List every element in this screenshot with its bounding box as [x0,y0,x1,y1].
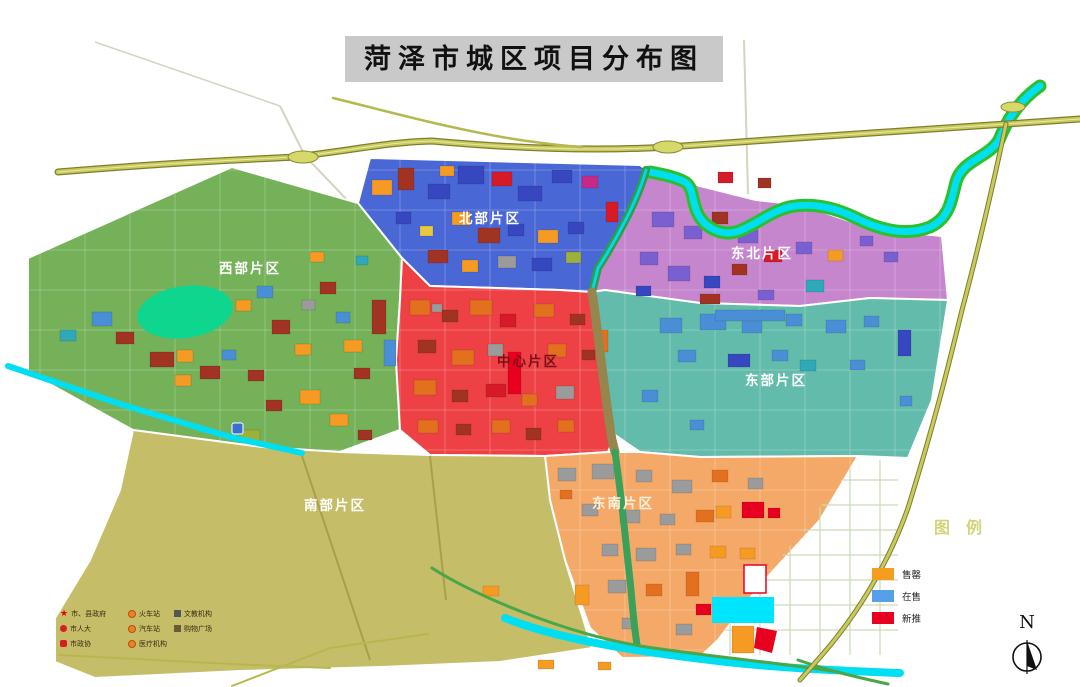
parcel [796,242,812,254]
parcel [483,586,499,596]
legend-item-onsale: 在售 [872,590,921,602]
district-label-east: 东部片区 [745,372,807,388]
district-label-southeast: 东南片区 [592,495,654,511]
map-page: 西部片区北部片区东北片区中心片区东部片区东南片区南部片区 菏泽市城区项目分布图 … [0,0,1080,687]
poi-label: 市、县政府 [71,609,106,619]
parcel [558,420,574,432]
parcel [414,380,436,395]
parcel [330,414,348,426]
parcel [592,464,614,479]
parcel [526,428,541,440]
map-title: 菏泽市城区项目分布图 [345,36,723,82]
parcel [310,252,324,262]
poi-item: 购物广场 [174,621,212,636]
emblem-square-icon [60,640,67,647]
parcel [150,352,174,367]
parcel [175,375,191,386]
parcel [522,394,537,406]
outlined-parcel [744,565,766,593]
hospital-icon [128,640,136,648]
parcel [678,350,696,362]
legend-title: 图例 [934,514,1020,538]
parcel [500,314,516,327]
parcel [606,202,618,222]
poi-item: 医疗机构 [128,636,167,651]
parcel [222,350,236,360]
parcel [566,252,581,263]
compass: N [1004,610,1050,686]
parcel [684,226,702,239]
parcel [354,368,370,379]
interchange-icon [288,151,318,163]
parcel [676,624,692,635]
parcel [372,180,392,195]
parcel [660,318,682,333]
parcel [772,350,788,361]
parcel [898,330,911,356]
parcel [236,300,251,311]
parcel [538,230,558,243]
parcel [556,386,574,399]
parcel [534,304,554,317]
parcel [302,300,315,310]
parcel [257,286,273,298]
parcel [582,176,598,188]
poi-label: 汽车站 [139,624,160,634]
parcel [558,468,576,481]
parcel [860,236,873,246]
parcel [560,490,572,499]
parcel [60,330,76,341]
parcel [568,222,584,234]
parcel [642,390,658,402]
parcel [768,508,780,518]
interchange-icon [653,141,683,153]
parcel [358,430,372,440]
district-label-northeast: 东北片区 [731,245,793,261]
parcel [452,390,468,402]
parcel [608,580,626,593]
parcel [177,350,193,362]
parcel [462,260,478,272]
parcel [320,282,336,294]
parcel [582,350,595,360]
parcel [598,662,611,670]
parcel [716,506,731,518]
parcel [492,420,510,433]
minor-road [333,98,582,147]
compass-n-label: N [1019,612,1035,633]
parcel [486,384,506,397]
parcel [718,172,733,183]
parcel [715,310,785,321]
parcel [272,320,290,334]
map-canvas: 西部片区北部片区东北片区中心片区东部片区东南片区南部片区 [0,0,1080,687]
parcel [758,290,774,300]
parcel [728,354,750,367]
parcel [344,340,362,352]
poi-item: 火车站 [128,606,167,621]
parcel [410,300,430,315]
parcel [396,212,411,224]
parcel [800,360,816,371]
parcel [492,172,512,186]
poi-item: 汽车站 [128,621,167,636]
parcel [754,627,777,653]
parcel [636,286,651,296]
parcel [786,314,802,326]
parcel [712,212,728,224]
poi-label: 火车站 [139,609,160,619]
poi-label: 市政协 [70,639,91,649]
parcel [336,312,350,323]
parcel [646,584,662,596]
parcel [602,544,618,556]
legend-item-new: 新推 [872,612,921,624]
parcel [740,548,755,559]
parcel [710,546,726,558]
parcel [248,370,264,381]
parcel [266,400,282,411]
parcel [900,396,912,406]
poi-label: 医疗机构 [139,639,167,649]
bus-station-icon [128,625,136,633]
poi-legend: ★ 市、县政府 市人大 市政协 火车站 汽车站 医疗机 [60,606,230,658]
parcel [668,266,690,281]
soldout-swatch [872,568,894,580]
interchange-icon [1001,102,1025,112]
mall-icon [174,625,181,632]
pond [712,597,774,623]
parcel [570,314,585,325]
parcel [200,366,220,379]
district-label-west: 西部片区 [219,260,281,276]
parcel [732,626,754,653]
parcel [660,514,675,525]
parcel [806,280,824,292]
legend-item-label: 在售 [902,589,921,603]
poi-legend-col-transport: 火车站 汽车站 医疗机构 [128,606,167,651]
parcel [575,585,589,605]
district-label-north: 北部片区 [459,210,521,226]
poi-item: 文教机构 [174,606,212,621]
parcel [384,340,396,366]
parcel [372,300,386,334]
parcel [116,332,134,344]
parcel [742,502,764,518]
parcel [652,212,674,227]
parcel [732,264,747,275]
district-label-south: 南部片区 [304,497,366,513]
poi-item: 市政协 [60,636,106,651]
district-label-center: 中心片区 [497,353,559,369]
parcel [552,170,572,183]
legend-item-soldout: 售罄 [872,568,921,580]
poi-item: 市人大 [60,621,106,636]
parcel [700,294,720,304]
parcel [850,360,865,370]
parcel [538,660,554,669]
parcel [758,178,771,188]
new-swatch [872,612,894,624]
parcel [92,312,112,326]
parcel [686,572,699,596]
parcel [640,252,658,265]
poi-blue-icon [232,423,243,434]
legend: 图例 售罄 在售 新推 [860,514,1020,538]
poi-label: 市人大 [70,624,91,634]
parcel [458,166,484,184]
parcel [470,300,492,315]
parcel [676,544,691,555]
parcel [636,470,652,482]
parcel [828,250,843,261]
parcel [478,228,500,243]
parcel [440,166,454,176]
parcel [420,226,433,236]
legend-item-label: 新推 [902,611,921,625]
parcel [826,320,846,333]
parcel [672,480,692,493]
poi-item: ★ 市、县政府 [60,606,106,621]
parcel [498,256,516,268]
parcel [442,310,458,322]
parcel [452,350,474,365]
parcel [712,470,728,482]
parcel [748,478,763,489]
star-icon: ★ [60,610,68,617]
train-station-icon [128,610,136,618]
parcel [398,168,414,190]
parcel [696,604,711,615]
onsale-swatch [872,590,894,602]
school-icon [174,610,181,617]
poi-legend-col-government: ★ 市、县政府 市人大 市政协 [60,606,106,651]
poi-label: 文教机构 [184,609,212,619]
parcel [884,252,898,262]
parcel [704,276,720,288]
parcel [418,420,438,433]
parcel [690,420,704,430]
parcel [636,548,656,561]
parcel [356,256,368,265]
parcel [456,424,471,435]
parcel [300,390,320,404]
parcel [428,184,450,199]
legend-item-label: 售罄 [902,567,921,581]
parcel [532,258,552,271]
parcel [428,250,448,263]
parcel [295,344,311,355]
parcel [432,304,442,312]
parcel [518,186,542,201]
parcel [864,316,879,327]
parcel [696,510,714,522]
poi-label: 购物广场 [184,624,212,634]
city-map: 西部片区北部片区东北片区中心片区东部片区东南片区南部片区 [0,0,1080,687]
parcel [418,340,436,353]
emblem-round-icon [60,625,67,632]
poi-legend-col-facility: 文教机构 购物广场 [174,606,212,636]
parcel [742,320,762,333]
